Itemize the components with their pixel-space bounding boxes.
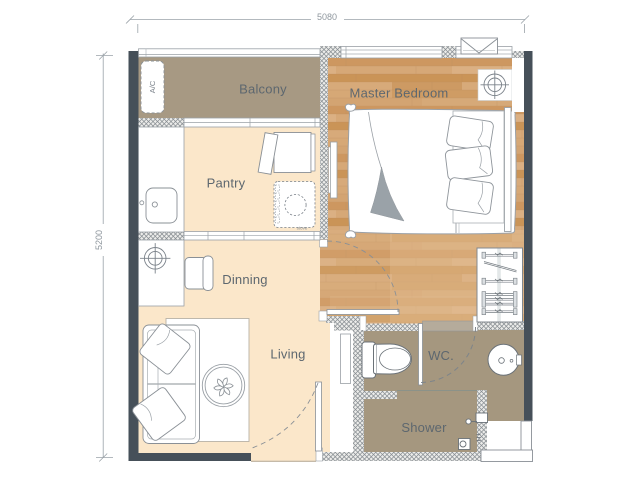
svg-text:Dinning: Dinning: [222, 272, 268, 287]
svg-text:5200: 5200: [94, 230, 104, 250]
svg-text:Living: Living: [270, 347, 305, 362]
svg-text:Balcony: Balcony: [239, 81, 287, 96]
svg-text:stove: stove: [297, 226, 308, 231]
svg-text:5080: 5080: [317, 12, 337, 22]
svg-text:Shower: Shower: [401, 420, 447, 435]
svg-text:Master Bedroom: Master Bedroom: [350, 85, 449, 100]
svg-text:A/C: A/C: [148, 80, 157, 93]
svg-text:WC.: WC.: [428, 348, 454, 363]
svg-text:Pantry: Pantry: [207, 176, 246, 191]
